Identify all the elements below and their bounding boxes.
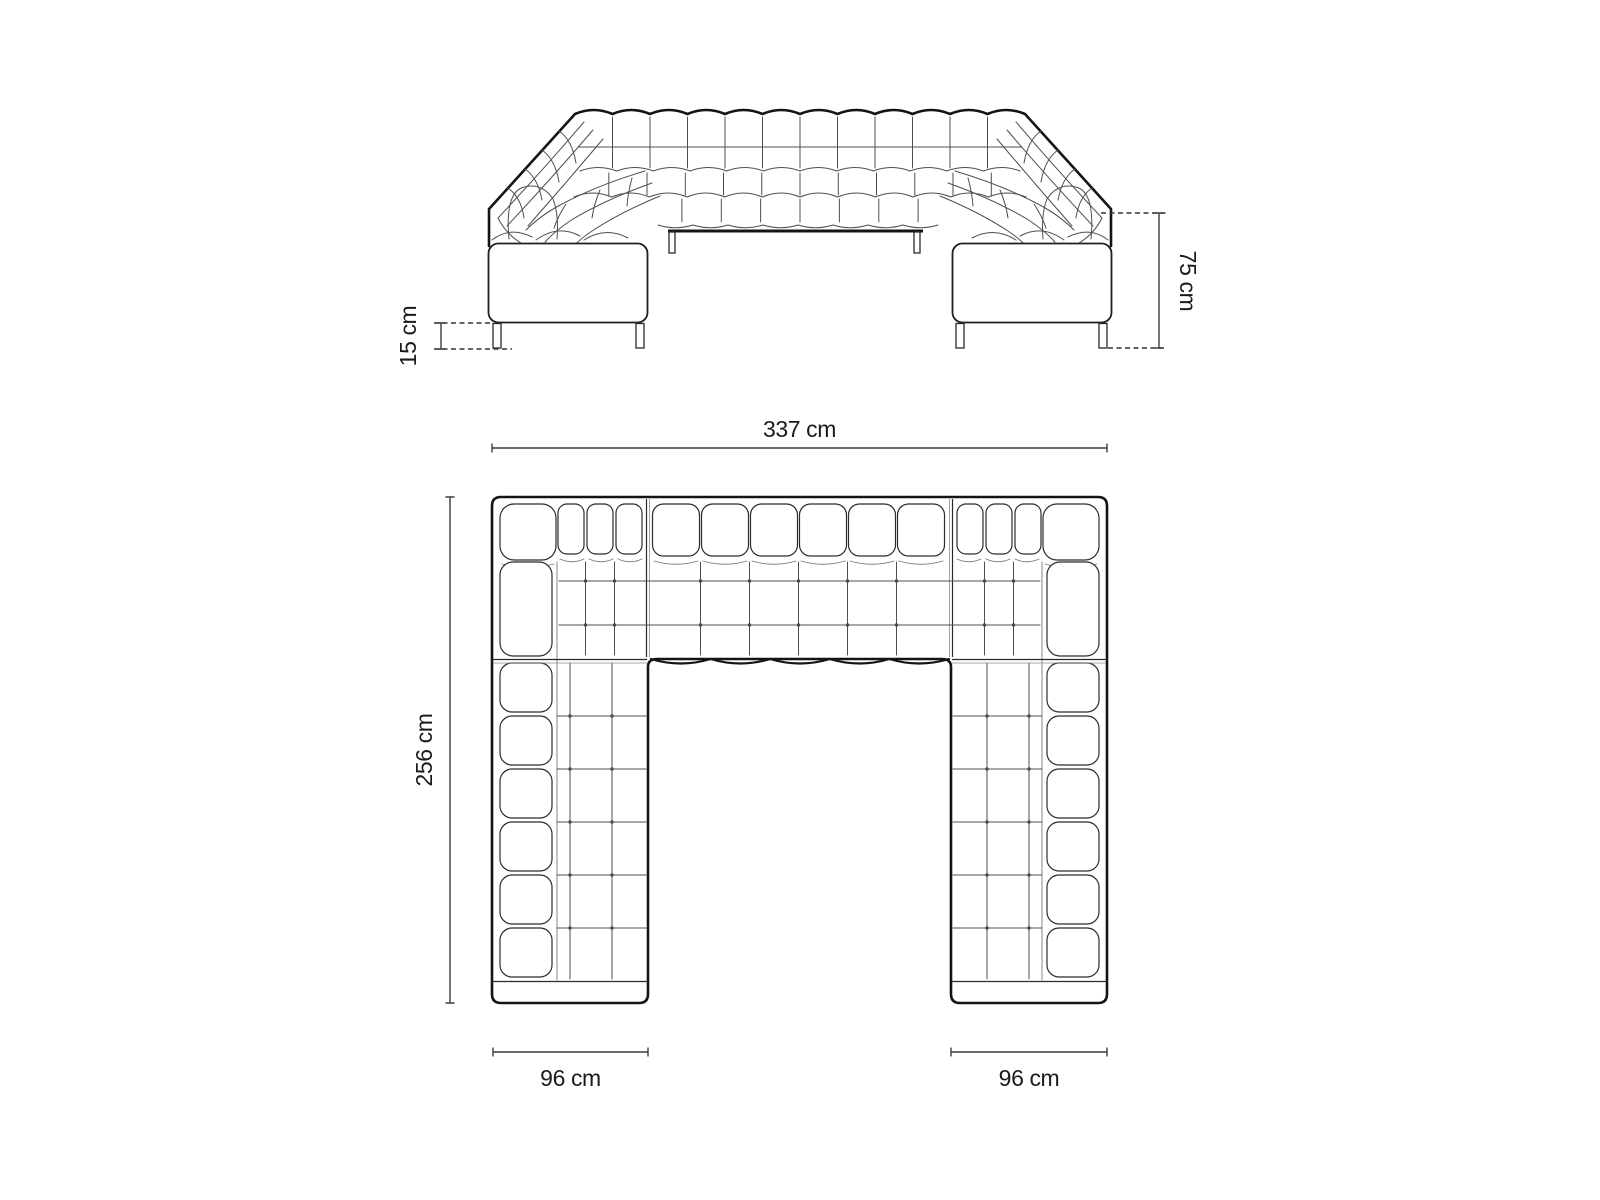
overall-height-label: 75 cm xyxy=(1175,251,1201,312)
right-arm-width-label: 96 cm xyxy=(999,1065,1060,1091)
sofa-dimension-drawing: 15 cm 75 cm xyxy=(0,0,1600,1200)
overall-depth-dimension: 256 cm xyxy=(411,497,455,1003)
right-arm-width-dimension: 96 cm xyxy=(951,1048,1107,1092)
overall-height-dimension: 75 cm xyxy=(1101,213,1201,348)
center-right-leg xyxy=(914,232,920,253)
left-arm-width-dimension: 96 cm xyxy=(493,1048,648,1092)
top-plan-view: 337 cm 256 cm 96 cm 96 cm xyxy=(411,416,1107,1091)
overall-width-dimension: 337 cm xyxy=(492,416,1107,453)
overall-width-label: 337 cm xyxy=(763,416,836,442)
arm-inner-leg xyxy=(636,324,644,349)
arm-outer-leg xyxy=(493,324,501,349)
arm-front-panel xyxy=(489,244,648,323)
front-elevation-view: 15 cm 75 cm xyxy=(395,110,1201,366)
plan-outline xyxy=(492,497,1107,1003)
dimension-diagram-page: 15 cm 75 cm xyxy=(0,0,1600,1200)
overall-depth-label: 256 cm xyxy=(411,713,437,786)
right-wing-section xyxy=(940,122,1112,348)
left-wing-section xyxy=(489,122,661,348)
leg-height-label: 15 cm xyxy=(395,306,421,367)
center-left-leg xyxy=(669,232,675,253)
left-arm-width-label: 96 cm xyxy=(540,1065,601,1091)
